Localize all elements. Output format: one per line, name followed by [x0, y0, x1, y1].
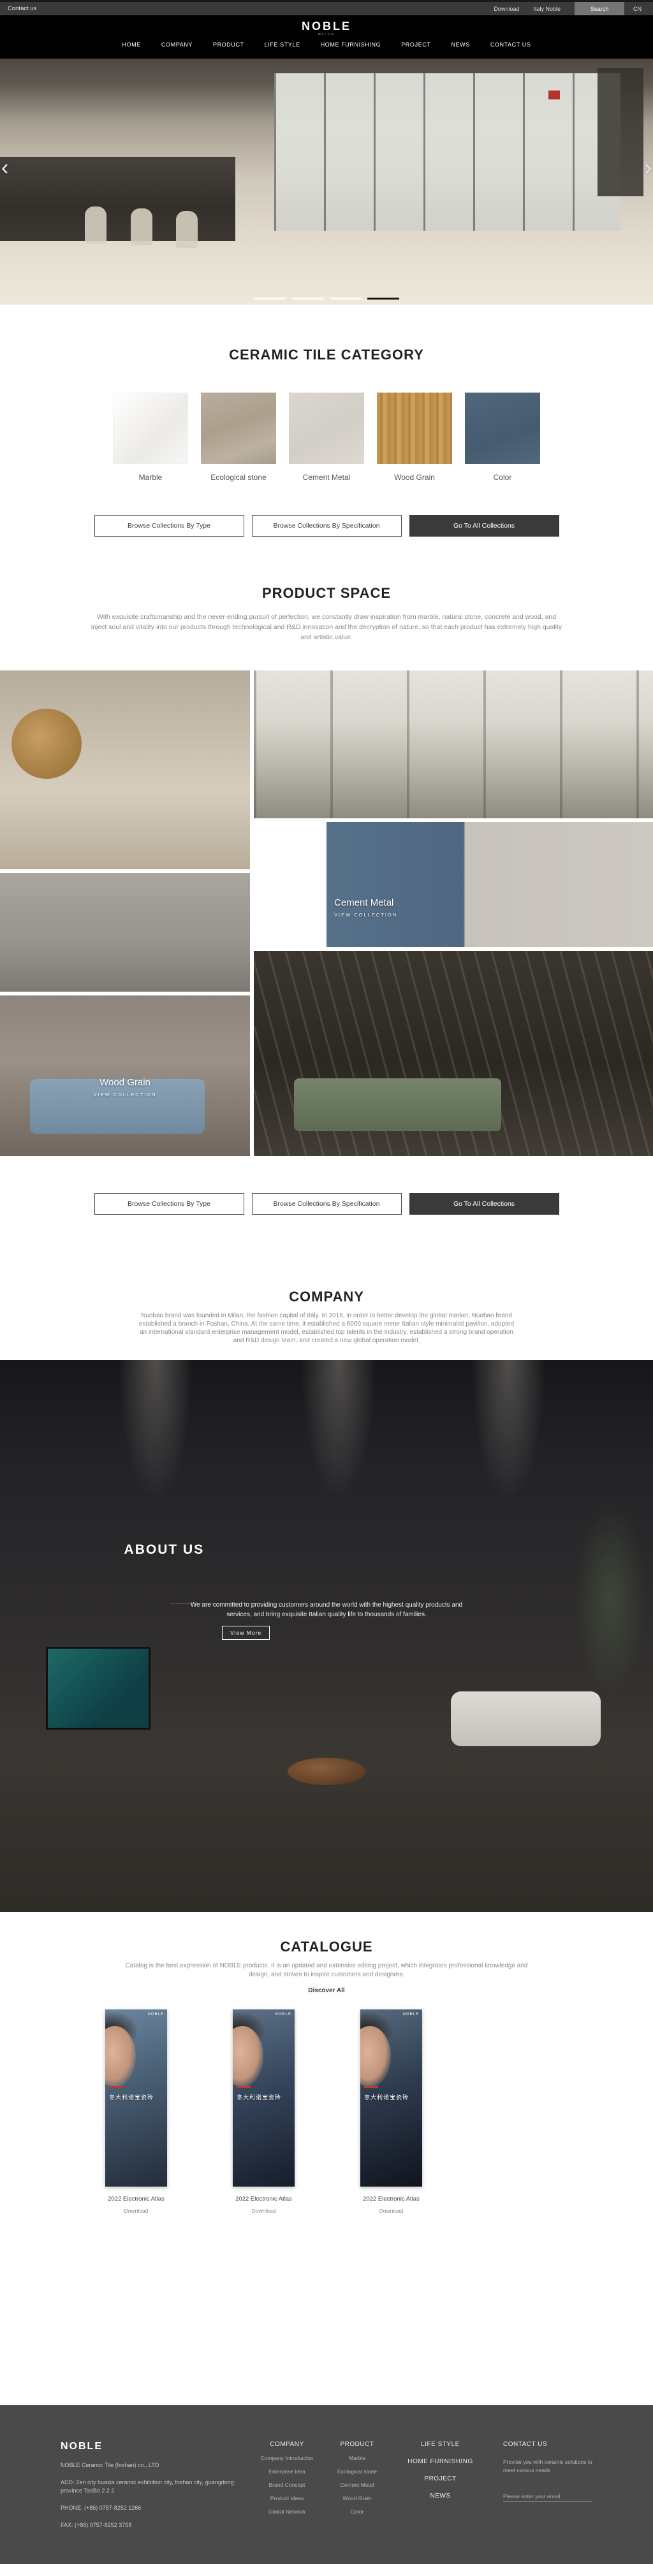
cover-red-bar-decor — [364, 2086, 378, 2088]
category-swatch-wood-grain[interactable] — [377, 393, 452, 464]
carousel-indicator-2[interactable] — [292, 298, 324, 300]
category-item-color: Color — [465, 393, 540, 482]
discover-all-link[interactable]: Discover All — [0, 1987, 653, 1994]
carousel-indicator-1[interactable] — [254, 298, 286, 300]
view-collection-link[interactable]: VIEW COLLECTION — [0, 1092, 250, 1097]
catalogue-grid: NOBLE 意大利诺宝瓷砖 2022 Electronic Atlas Down… — [0, 2009, 653, 2214]
footer-company-info: NOBLE NOBLE Ceramic Tile (foshan) co., L… — [61, 2441, 252, 2529]
site-footer: NOBLE NOBLE Ceramic Tile (foshan) co., L… — [0, 2405, 653, 2564]
nav-item-project[interactable]: PROJECT — [401, 41, 430, 48]
italy-noble-link[interactable]: Italy Noble — [533, 6, 561, 12]
green-sofa-decor — [294, 1078, 502, 1132]
carousel-indicator-3[interactable] — [330, 298, 362, 300]
utility-bar: Contact us Download Italy Noble Search C… — [0, 2, 653, 15]
space-tile-cement-metal[interactable]: Cement Metal VIEW COLLECTION — [326, 822, 653, 947]
footer-heading-home-furnishing[interactable]: HOME FURNISHING — [400, 2458, 480, 2465]
hero-carousel: ‹ › — [0, 59, 653, 305]
footer-heading-lifestyle[interactable]: LIFE STYLE — [400, 2441, 480, 2448]
catalogue-item-name: 2022 Electronic Atlas — [105, 2196, 167, 2203]
footer-link[interactable]: Brand Concept — [249, 2482, 325, 2488]
category-label: Ecological stone — [201, 473, 276, 482]
tile-title: Cement Metal — [334, 897, 397, 908]
category-item-ecological-stone: Ecological stone — [201, 393, 276, 482]
category-swatch-ecological-stone[interactable] — [201, 393, 276, 464]
catalogue-section: CATALOGUE Catalog is the best expression… — [0, 1912, 653, 2405]
footer-heading-news[interactable]: NEWS — [400, 2493, 480, 2500]
cover-title-text: 意大利诺宝瓷砖 — [109, 2093, 154, 2101]
catalogue-download-link[interactable]: Download — [105, 2208, 167, 2214]
footer-link[interactable]: Color — [322, 2508, 392, 2515]
footer-heading-project[interactable]: PROJECT — [400, 2475, 480, 2482]
footer-column-product: PRODUCT Marble Ecological stone Cement M… — [322, 2441, 392, 2515]
category-swatch-marble[interactable] — [113, 393, 188, 464]
tile-title: Wood Grain — [0, 1077, 250, 1088]
nav-item-company[interactable]: COMPANY — [161, 41, 193, 48]
product-space-collage: Marbl VIEW COLLECTION Cement Metal VIEW … — [0, 670, 653, 1156]
catalogue-cover-2[interactable]: NOBLE 意大利诺宝瓷砖 — [233, 2009, 295, 2187]
browse-by-specification-button[interactable]: Browse Collections By Specification — [252, 1193, 402, 1215]
nav-item-lifestyle[interactable]: LIFE STYLE — [265, 41, 300, 48]
site-header: NOBLE MILAN HOME COMPANY PRODUCT LIFE ST… — [0, 15, 653, 59]
nav-item-product[interactable]: PRODUCT — [213, 41, 244, 48]
footer-contact-text: Provide you with ceramic solutions to me… — [503, 2458, 599, 2475]
category-label: Color — [465, 473, 540, 482]
category-swatch-color[interactable] — [465, 393, 540, 464]
footer-link[interactable]: Marble — [322, 2455, 392, 2461]
catalogue-download-link[interactable]: Download — [233, 2208, 295, 2214]
category-label: Marble — [113, 473, 188, 482]
footer-link[interactable]: Ecological stone — [322, 2468, 392, 2475]
cover-brand-logo: NOBLE — [148, 2013, 164, 2016]
about-view-more-button[interactable]: View More — [222, 1626, 270, 1640]
tile-caption-wood-grain: Wood Grain VIEW COLLECTION — [0, 1077, 250, 1097]
footer-fax: FAX: (+86) 0757-8252 3758 — [61, 2521, 252, 2529]
main-nav: HOME COMPANY PRODUCT LIFE STYLE HOME FUR… — [0, 41, 653, 48]
space-tile-slat-wall[interactable] — [254, 951, 653, 1156]
carousel-indicators — [0, 298, 653, 300]
category-swatch-cement-metal[interactable] — [289, 393, 364, 464]
catalogue-download-link[interactable]: Download — [360, 2208, 422, 2214]
hero-slab-decor — [598, 68, 643, 196]
catalogue-cover-3[interactable]: NOBLE 意大利诺宝瓷砖 — [360, 2009, 422, 2187]
footer-link[interactable]: Enterprise Idea — [249, 2468, 325, 2475]
hero-window-frames-decor — [274, 73, 620, 231]
category-item-cement-metal: Cement Metal — [289, 393, 364, 482]
about-us-section: ABOUT US We are committed to providing c… — [0, 1360, 653, 1912]
space-tile-wood-grain[interactable]: Wood Grain VIEW COLLECTION — [0, 995, 250, 1156]
cover-title-text: 意大利诺宝瓷砖 — [237, 2093, 281, 2101]
email-input[interactable] — [503, 2491, 592, 2502]
nav-item-contact[interactable]: CONTACT US — [490, 41, 531, 48]
language-toggle-cn[interactable]: CN — [633, 6, 642, 12]
footer-column-company: COMPANY Company Introduction Enterprise … — [249, 2441, 325, 2515]
cover-red-bar-decor — [237, 2086, 251, 2088]
catalogue-card-2: NOBLE 意大利诺宝瓷砖 2022 Electronic Atlas Down… — [233, 2009, 295, 2214]
brand-logo[interactable]: NOBLE — [0, 20, 653, 32]
footer-company-name: NOBLE Ceramic Tile (foshan) co., LTD — [61, 2461, 252, 2470]
gold-circle-decor — [11, 709, 82, 779]
footer-link[interactable]: Cement Metal — [322, 2482, 392, 2488]
cover-brand-logo: NOBLE — [275, 2013, 291, 2016]
category-label: Cement Metal — [289, 473, 364, 482]
company-section: COMPANY Nuobao brand was founded in Mila… — [0, 1266, 653, 1360]
category-label: Wood Grain — [377, 473, 452, 482]
footer-column-sections: LIFE STYLE HOME FURNISHING PROJECT NEWS — [400, 2441, 480, 2510]
hero-counter-decor — [0, 157, 235, 240]
company-description: Nuobao brand was founded in Milan, the f… — [135, 1312, 518, 1345]
footer-heading-product[interactable]: PRODUCT — [322, 2441, 392, 2448]
hero-stool-decor — [176, 211, 198, 248]
view-collection-link[interactable]: VIEW COLLECTION — [334, 912, 397, 918]
contact-us-link[interactable]: Contact us — [8, 5, 36, 12]
collection-buttons-row-2: Browse Collections By Type Browse Collec… — [0, 1193, 653, 1215]
brand-tagline: MILAN — [0, 33, 653, 36]
space-tile-terrace[interactable] — [254, 670, 653, 818]
carousel-indicator-4-active[interactable] — [367, 298, 399, 300]
footer-contact-block: CONTACT US Provide you with ceramic solu… — [503, 2441, 599, 2502]
catalogue-item-name: 2022 Electronic Atlas — [233, 2196, 295, 2203]
hero-stool-decor — [131, 208, 152, 245]
chevron-left-icon[interactable]: ‹ — [1, 157, 8, 178]
collection-buttons-row-1: Browse Collections By Type Browse Collec… — [0, 515, 653, 537]
hero-red-sign-decor — [548, 90, 560, 99]
footer-link[interactable]: Company Introduction — [249, 2455, 325, 2461]
footer-phone: PHONE: (+86) 0757-8252 1266 — [61, 2504, 252, 2512]
hero-stool-decor — [85, 206, 106, 243]
footer-brand-logo: NOBLE — [61, 2441, 252, 2452]
nav-item-home-furnishing[interactable]: HOME FURNISHING — [321, 41, 381, 48]
category-item-wood-grain: Wood Grain — [377, 393, 452, 482]
company-title: COMPANY — [0, 1289, 653, 1305]
download-link[interactable]: Download — [494, 6, 519, 12]
browse-by-specification-button[interactable]: Browse Collections By Specification — [252, 515, 402, 537]
cover-title-text: 意大利诺宝瓷砖 — [364, 2093, 409, 2101]
chevron-right-icon[interactable]: › — [645, 157, 652, 178]
catalogue-cover-1[interactable]: NOBLE 意大利诺宝瓷砖 — [105, 2009, 167, 2187]
catalogue-card-1: NOBLE 意大利诺宝瓷砖 2022 Electronic Atlas Down… — [105, 2009, 167, 2214]
catalogue-description: Catalog is the best expression of NOBLE … — [122, 1962, 531, 1979]
nav-item-home[interactable]: HOME — [122, 41, 141, 48]
catalogue-card-3: NOBLE 意大利诺宝瓷砖 2022 Electronic Atlas Down… — [360, 2009, 422, 2214]
about-overlay: ABOUT US We are committed to providing c… — [0, 1360, 653, 1912]
category-swatch-row: Marble Ecological stone Cement Metal Woo… — [0, 393, 653, 482]
product-space-title: PRODUCT SPACE — [0, 585, 653, 602]
about-us-description: We are committed to providing customers … — [180, 1600, 473, 1619]
catalogue-title: CATALOGUE — [0, 1939, 653, 1955]
nav-item-news[interactable]: NEWS — [451, 41, 469, 48]
product-space-description: With exquisite craftsmanship and the nev… — [91, 612, 562, 642]
space-tile-living-room[interactable] — [0, 873, 250, 992]
space-tile-marble[interactable]: Marbl VIEW COLLECTION — [0, 670, 250, 869]
go-to-all-collections-button[interactable]: Go To All Collections — [409, 1193, 559, 1215]
about-us-heading: ABOUT US — [124, 1542, 205, 1558]
go-to-all-collections-button[interactable]: Go To All Collections — [409, 515, 559, 537]
catalogue-item-name: 2022 Electronic Atlas — [360, 2196, 422, 2203]
category-section-title: CERAMIC TILE CATEGORY — [0, 347, 653, 363]
browse-by-type-button[interactable]: Browse Collections By Type — [94, 515, 244, 537]
browse-by-type-button[interactable]: Browse Collections By Type — [94, 1193, 244, 1215]
search-button[interactable]: Search — [575, 2, 624, 15]
ceramic-tile-category-section: CERAMIC TILE CATEGORY Marble Ecological … — [0, 305, 653, 553]
footer-address: ADD: Zen city huaxia ceramic exhibition … — [61, 2478, 252, 2495]
footer-link[interactable]: Wood Grain — [322, 2495, 392, 2501]
footer-link[interactable]: Product Ideas — [249, 2495, 325, 2501]
cover-red-bar-decor — [109, 2086, 123, 2088]
tile-caption-cement-metal: Cement Metal VIEW COLLECTION — [334, 897, 397, 918]
cover-brand-logo: NOBLE — [403, 2013, 419, 2016]
footer-heading-company[interactable]: COMPANY — [249, 2441, 325, 2448]
product-space-section: PRODUCT SPACE With exquisite craftsmansh… — [0, 553, 653, 1266]
footer-link[interactable]: Global Network — [249, 2508, 325, 2515]
footer-heading-contact-us[interactable]: CONTACT US — [503, 2441, 599, 2448]
category-item-marble: Marble — [113, 393, 188, 482]
terrace-frame-decor — [254, 670, 653, 818]
